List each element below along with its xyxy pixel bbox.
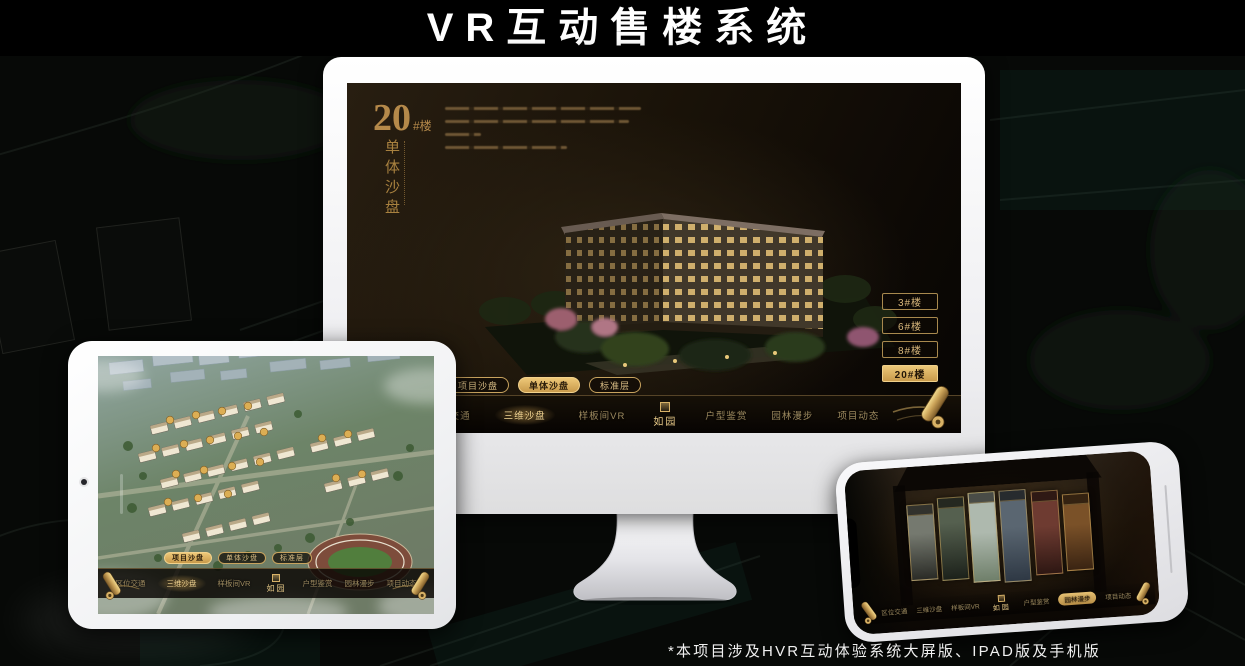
floor-button-3[interactable]: 3#楼 (882, 293, 938, 310)
project-logo: 如园 (266, 574, 286, 594)
building-render (465, 169, 897, 379)
nav-item-model-room-vr[interactable]: 样板间VR (579, 408, 626, 422)
tablet-camera-icon (81, 479, 87, 485)
tablet-device: 项目沙盘 单体沙盘 标准层 区位交通 三维沙盘 样板间VR 如园 户型鉴赏 园林… (68, 341, 456, 629)
scroll-icon[interactable] (859, 596, 895, 626)
vr-gallery-panel[interactable] (906, 503, 938, 581)
nav-item-project-news[interactable]: 项目动态 (837, 408, 879, 422)
logo-seal-icon (660, 402, 670, 412)
nav-item-floorplan[interactable]: 户型鉴赏 (1023, 596, 1050, 608)
phone-screen: 区位交通 三维沙盘 样板间VR 如园 户型鉴赏 园林漫步 项目动态 (844, 450, 1161, 635)
logo-label: 如园 (266, 583, 286, 594)
subtitle-divider (404, 141, 405, 205)
nav-item-model-room-vr[interactable]: 样板间VR (951, 600, 980, 612)
section-subtitle: 单体沙盘 (381, 139, 402, 219)
nav-item-floorplan[interactable]: 户型鉴赏 (705, 408, 747, 422)
page-title: VR互动售楼系统 (427, 8, 819, 48)
gate-roof-silhouette (893, 454, 1102, 492)
subtab-project-sandbox[interactable]: 项目沙盘 (447, 377, 509, 393)
subtab-standard-floor[interactable]: 标准层 (589, 377, 641, 393)
background-plaque (96, 217, 192, 330)
footnote: *本项目涉及HVR互动体验系统大屏版、IPAD版及手机版 (668, 640, 1101, 661)
vr-gallery-panel[interactable] (1031, 490, 1064, 576)
scroll-icon[interactable] (390, 568, 432, 602)
title-band: VR互动售楼系统 (0, 0, 1245, 56)
nav-item-floorplan[interactable]: 户型鉴赏 (302, 578, 332, 589)
nav-item-3d-sandbox[interactable]: 三维沙盘 (158, 575, 206, 592)
phone-device: 区位交通 三维沙盘 样板间VR 如园 户型鉴赏 园林漫步 项目动态 (834, 440, 1190, 644)
logo-seal-icon (997, 595, 1004, 602)
scroll-icon[interactable] (100, 568, 142, 602)
subtab-single-building[interactable]: 单体沙盘 (518, 377, 580, 393)
vr-gallery-panel[interactable] (998, 489, 1031, 583)
building-heading: 20#楼 (373, 99, 432, 137)
floor-button-8[interactable]: 8#楼 (882, 341, 938, 358)
project-logo: 如园 (653, 402, 677, 428)
floor-selector: 3#楼 6#楼 8#楼 20#楼 (882, 293, 938, 382)
intro-paragraph-blurred (445, 107, 641, 159)
logo-label: 如园 (993, 602, 1012, 613)
scroll-icon[interactable] (889, 381, 953, 431)
nav-item-model-room-vr[interactable]: 样板间VR (218, 578, 251, 589)
subtab-project-sandbox[interactable]: 项目沙盘 (164, 552, 212, 564)
monitor-stand (505, 512, 805, 612)
vr-gallery-panel[interactable] (937, 496, 970, 581)
nav-item-3d-sandbox[interactable]: 三维沙盘 (495, 405, 555, 425)
sandbox-subtabs: 项目沙盘 单体沙盘 标准层 (447, 377, 641, 393)
tablet-subtabs: 项目沙盘 单体沙盘 标准层 (164, 552, 312, 564)
vr-gallery-panel[interactable] (967, 491, 1000, 583)
nav-item-garden-walk[interactable]: 园林漫步 (771, 408, 813, 422)
poster-stage: VR互动售楼系统 20#楼 单体沙盘 (0, 0, 1245, 666)
tablet-screen: 项目沙盘 单体沙盘 标准层 区位交通 三维沙盘 样板间VR 如园 户型鉴赏 园林… (98, 356, 434, 614)
phone-bezel-line (1164, 485, 1172, 573)
nav-item-garden-walk[interactable]: 园林漫步 (344, 578, 374, 589)
subtab-standard-floor[interactable]: 标准层 (272, 552, 312, 564)
nav-item-garden-walk[interactable]: 园林漫步 (1058, 591, 1097, 606)
logo-seal-icon (272, 574, 280, 582)
subtab-single-building[interactable]: 单体沙盘 (218, 552, 266, 564)
scroll-icon[interactable] (1118, 578, 1154, 608)
logo-label: 如园 (653, 413, 677, 428)
building-unit: #楼 (413, 119, 432, 133)
tablet-nav-bar: 区位交通 三维沙盘 样板间VR 如园 户型鉴赏 园林漫步 项目动态 (98, 568, 434, 598)
floor-button-20[interactable]: 20#楼 (882, 365, 938, 382)
project-logo: 如园 (992, 594, 1011, 613)
nav-item-3d-sandbox[interactable]: 三维沙盘 (916, 603, 943, 615)
building-number: 20 (373, 97, 411, 139)
floor-button-6[interactable]: 6#楼 (882, 317, 938, 334)
vr-gallery-panel[interactable] (1062, 493, 1094, 572)
